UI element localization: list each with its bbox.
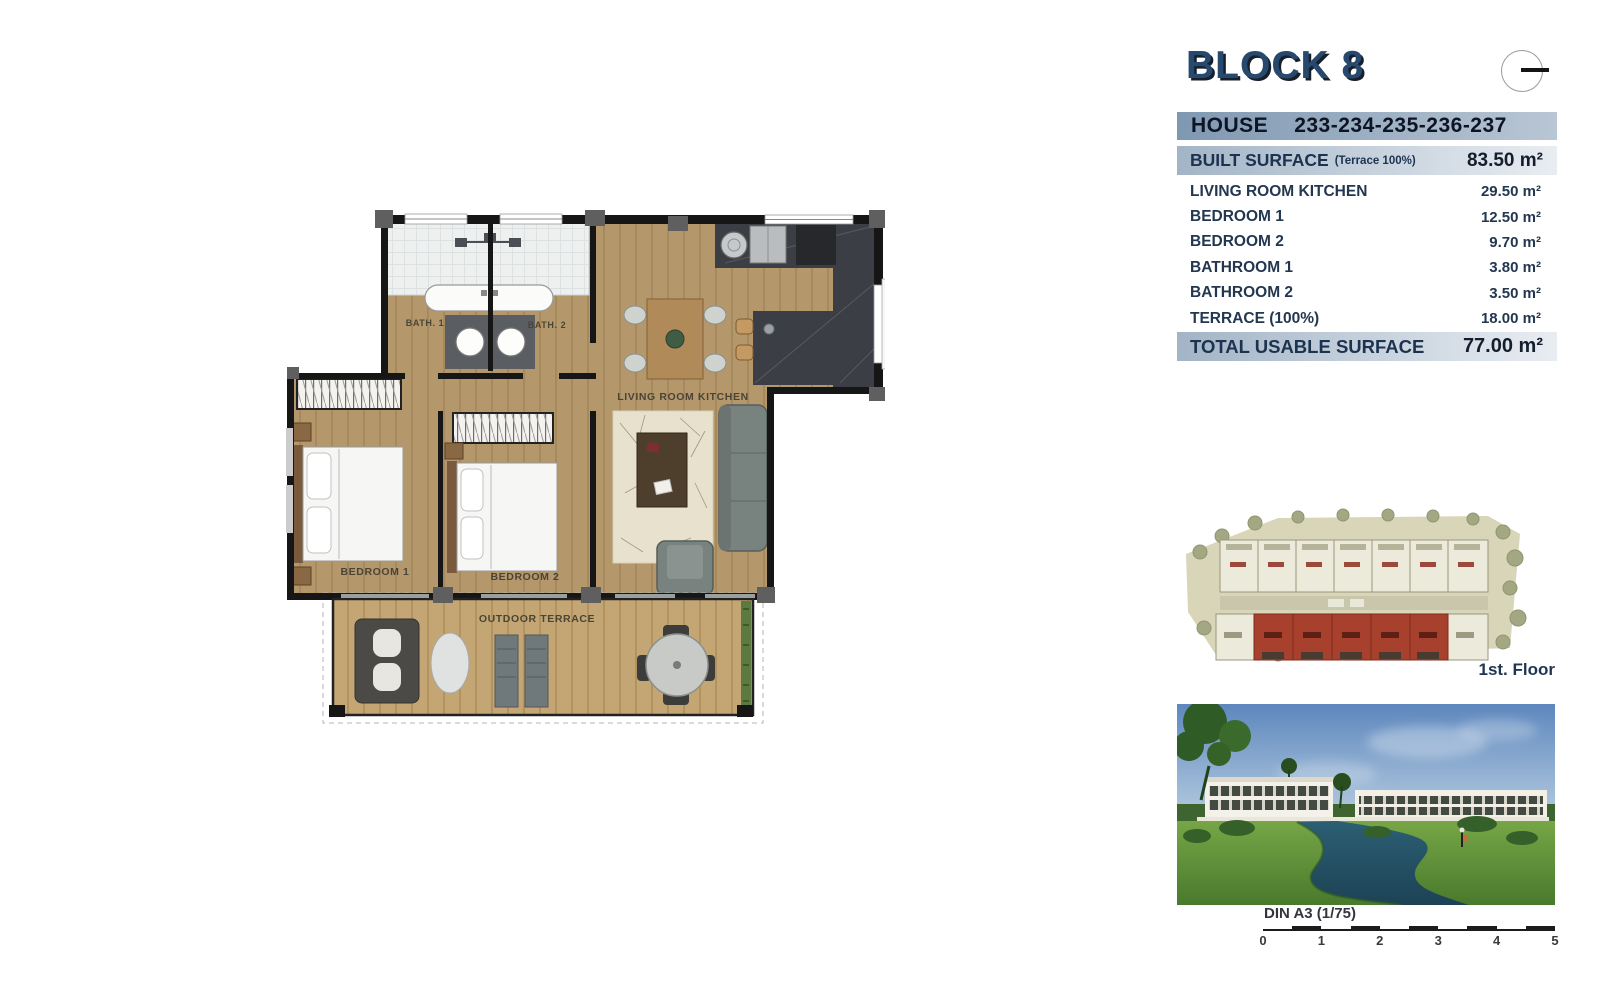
hedge [741, 601, 751, 713]
row-label: BATHROOM 2 [1177, 284, 1293, 302]
built-surface-note: (Terrace 100%) [1335, 155, 1416, 167]
total-surface-bar: TOTAL USABLE SURFACE 77.00 m² [1177, 332, 1557, 361]
table-row: TERRACE (100%) 18.00 m² [1177, 306, 1557, 331]
compass-icon [1501, 50, 1543, 92]
surface-rows: LIVING ROOM KITCHEN 29.50 m² BEDROOM 1 1… [1177, 179, 1557, 331]
floor-plan: BATH. 1 BATH. 2 LIVING ROOM KITCHEN BEDR… [285, 193, 885, 748]
house-label: HOUSE [1177, 114, 1268, 138]
row-value: 3.80 m² [1489, 259, 1557, 276]
building-row-top [1220, 540, 1488, 592]
row-label: LIVING ROOM KITCHEN [1177, 183, 1367, 201]
kitchen-sink-round-icon [721, 232, 747, 258]
bedroom1-label: BEDROOM 1 [341, 566, 410, 578]
built-surface-label: BUILT SURFACE [1177, 150, 1329, 171]
row-value: 18.00 m² [1481, 310, 1557, 327]
block-title: BLOCK 8 [1186, 44, 1364, 88]
bed-headboard [293, 445, 303, 563]
toilet-icon [456, 328, 484, 356]
tick: 0 [1259, 933, 1266, 948]
wardrobe [453, 413, 553, 443]
bed-headboard [447, 461, 457, 573]
row-value: 3.50 m² [1489, 285, 1557, 302]
table-row: LIVING ROOM KITCHEN 29.50 m² [1177, 179, 1557, 204]
row-label: BATHROOM 1 [1177, 259, 1293, 277]
table-row: BATHROOM 1 3.80 m² [1177, 255, 1557, 280]
bedroom1-furniture [291, 379, 403, 585]
toilet-icon [497, 328, 525, 356]
terrace-label: OUTDOOR TERRACE [479, 613, 595, 625]
row-label: BEDROOM 1 [1177, 208, 1284, 226]
bar-faucet-icon [764, 324, 774, 334]
living-room-label: LIVING ROOM KITCHEN [617, 391, 749, 403]
scale-label: DIN A3 (1/75) [1264, 905, 1555, 922]
bath2-label: BATH. 2 [528, 320, 567, 330]
row-label: TERRACE (100%) [1177, 310, 1319, 328]
bath1-label: BATH. 1 [406, 318, 445, 328]
terrace-side-table [431, 633, 469, 693]
row-value: 29.50 m² [1481, 183, 1557, 200]
floor-level-label: 1st. Floor [1420, 660, 1555, 680]
sofa [719, 405, 767, 551]
tick: 4 [1493, 933, 1500, 948]
row-value: 12.50 m² [1481, 209, 1557, 226]
total-surface-value: 77.00 m² [1463, 335, 1557, 358]
house-bar: HOUSE 233-234-235-236-237 [1177, 112, 1557, 140]
total-surface-label: TOTAL USABLE SURFACE [1177, 336, 1424, 358]
coffee-table [637, 433, 687, 507]
scale-ticks: 0 1 2 3 4 5 [1263, 933, 1555, 949]
tick: 5 [1551, 933, 1558, 948]
wardrobe [297, 379, 401, 409]
tick: 3 [1435, 933, 1442, 948]
development-photo [1177, 704, 1555, 905]
kitchen-hob [796, 225, 836, 265]
site-plan [1158, 492, 1558, 670]
built-surface-value: 83.50 m² [1467, 150, 1557, 172]
armchair [657, 541, 713, 595]
house-numbers: 233-234-235-236-237 [1294, 114, 1507, 138]
scale-bar: DIN A3 (1/75) 0 1 2 3 4 5 [1263, 905, 1555, 949]
tick: 1 [1318, 933, 1325, 948]
living-rug [613, 411, 713, 563]
row-label: BEDROOM 2 [1177, 233, 1284, 251]
scale-segments [1263, 926, 1555, 931]
building-row-bottom [1216, 614, 1488, 660]
table-row: BEDROOM 2 9.70 m² [1177, 230, 1557, 255]
row-value: 9.70 m² [1489, 234, 1557, 251]
table-row: BATHROOM 2 3.50 m² [1177, 281, 1557, 306]
table-row: BEDROOM 1 12.50 m² [1177, 204, 1557, 229]
built-surface-bar: BUILT SURFACE (Terrace 100%) 83.50 m² [1177, 146, 1557, 175]
bedroom2-label: BEDROOM 2 [491, 571, 560, 583]
tick: 2 [1376, 933, 1383, 948]
bedroom2-furniture [445, 413, 557, 573]
